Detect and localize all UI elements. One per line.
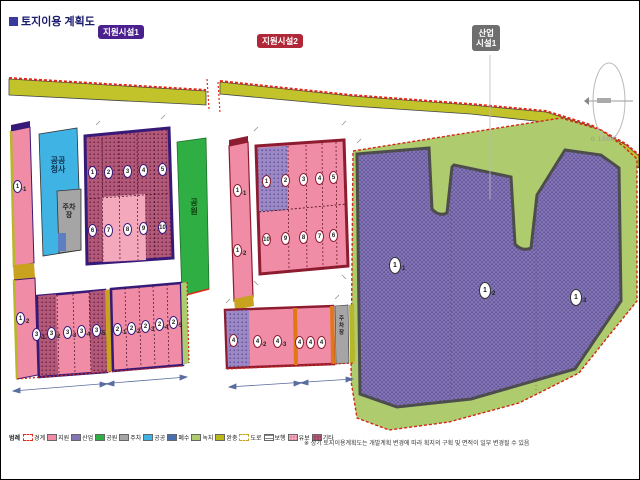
legend-swatch-pedestrian bbox=[264, 434, 274, 441]
page-title: 토지이용 계획도 bbox=[9, 13, 95, 29]
legend-item: 완충 bbox=[215, 433, 237, 442]
badge-industry-line2: 시설1 bbox=[476, 38, 496, 48]
lot-marker: 3-5 bbox=[92, 324, 101, 337]
lot-marker: 10 bbox=[158, 221, 167, 234]
legend-swatch-road bbox=[239, 434, 249, 441]
footnote: ※ 상기 토지이용계획도는 개발계획 변경에 따라 획지의 구획 및 면적이 일… bbox=[304, 438, 636, 447]
parking-label: 주차 장 bbox=[58, 204, 80, 219]
legend-swatch-parking bbox=[119, 434, 129, 441]
lot-marker: 3-3 bbox=[63, 326, 72, 339]
legend-swatch-public bbox=[143, 434, 153, 441]
legend: 범례 경계 지원 산업 공원 주차 공공 폐수 녹지 완충 도로 보행 유보 기… bbox=[9, 433, 334, 442]
lot-marker: 5 bbox=[329, 171, 338, 184]
lot-marker: 1-2 bbox=[16, 312, 25, 325]
legend-item: 도로 bbox=[239, 433, 261, 442]
badge-industrial-facility-1: 산업 시설1 bbox=[472, 25, 500, 51]
lot-marker: 9 bbox=[139, 222, 148, 235]
badge-support-facility-2: 지원시설2 bbox=[257, 34, 303, 48]
lot-marker: 1-1 bbox=[13, 180, 22, 193]
legend-swatch-support bbox=[47, 434, 57, 441]
lot-marker: 4 bbox=[295, 336, 304, 349]
lot-marker: 4-3 bbox=[273, 335, 282, 348]
legend-item: 공공 bbox=[143, 433, 165, 442]
legend-swatch-boundary bbox=[23, 434, 33, 441]
lot-marker: 9 bbox=[281, 232, 290, 245]
legend-swatch-park bbox=[95, 434, 105, 441]
legend-swatch-treatment bbox=[167, 434, 177, 441]
legend-item: 보행 bbox=[264, 433, 286, 442]
lot-marker: 3 bbox=[123, 165, 132, 178]
lot-marker: 8 bbox=[123, 223, 132, 236]
lot-marker: 1-1 bbox=[233, 184, 242, 197]
lot-marker: 4 bbox=[315, 172, 324, 185]
lot-marker: 4 bbox=[306, 336, 315, 349]
badge-support-facility-1: 지원시설1 bbox=[98, 25, 144, 39]
lot-marker: 5 bbox=[158, 163, 167, 176]
lot-marker: 4 bbox=[229, 334, 238, 347]
lot-marker: 3-2 bbox=[47, 327, 56, 340]
lot-marker: 3-1 bbox=[32, 328, 41, 341]
lot-marker: 1 bbox=[88, 166, 97, 179]
scale-text: 0 100m bbox=[591, 137, 617, 143]
legend-item: 공원 bbox=[95, 433, 117, 442]
lot-marker: 2-5 bbox=[169, 316, 178, 329]
legend-item: 경계 bbox=[23, 433, 45, 442]
legend-title: 범례 bbox=[9, 433, 20, 442]
lot-marker: 10 bbox=[262, 233, 271, 246]
legend-swatch-industry bbox=[71, 434, 81, 441]
lot-marker: 3-4 bbox=[77, 325, 86, 338]
legend-swatch-reserved bbox=[288, 434, 298, 441]
lot-marker: 4 bbox=[317, 336, 326, 349]
lot-marker: 2 bbox=[281, 174, 290, 187]
badge-industry-line1: 산업 bbox=[478, 28, 494, 38]
title-square-icon bbox=[9, 17, 18, 26]
public-building-label: 공공 청사 bbox=[41, 157, 75, 175]
lot-marker: 2-1 bbox=[113, 323, 122, 336]
lot-marker: 7 bbox=[104, 224, 113, 237]
lot-marker: 8 bbox=[299, 231, 308, 244]
page-title-text: 토지이용 계획도 bbox=[21, 13, 95, 29]
lot-marker: 2 bbox=[104, 166, 113, 179]
park-label: 공 원 bbox=[185, 199, 203, 217]
legend-item: 지원 bbox=[47, 433, 69, 442]
legend-item: 주차 bbox=[119, 433, 141, 442]
lot-marker: 3 bbox=[299, 173, 308, 186]
lot-marker: 7 bbox=[315, 230, 324, 243]
lot-marker: 6 bbox=[329, 229, 338, 242]
lot-marker: 4-2 bbox=[253, 335, 262, 348]
legend-item: 폐수 bbox=[167, 433, 189, 442]
lot-marker: 4 bbox=[139, 164, 148, 177]
legend-swatch-buffer bbox=[215, 434, 225, 441]
lot-marker: 1-1 bbox=[389, 257, 401, 274]
buffer-band-left bbox=[9, 78, 209, 109]
land-use-plan-page: 토지이용 계획도 지원시설1 지원시설2 산업 시설1 0 100m 공공 청사… bbox=[0, 0, 640, 480]
legend-swatch-green bbox=[191, 434, 201, 441]
lot-marker: 2-2 bbox=[127, 322, 136, 335]
legend-item: 녹지 bbox=[191, 433, 213, 442]
lot-marker: 1 bbox=[262, 175, 271, 188]
lot-marker: 6 bbox=[88, 224, 97, 237]
mid-parking-label: 주 차 장 bbox=[335, 316, 348, 337]
legend-item: 산업 bbox=[71, 433, 93, 442]
lot-marker: 1-2 bbox=[479, 282, 491, 299]
lot-marker: 2-4 bbox=[155, 318, 164, 331]
lot-marker: 1-2 bbox=[233, 244, 242, 257]
lot-marker: 1-3 bbox=[570, 289, 582, 306]
lot-marker: 2-3 bbox=[141, 320, 150, 333]
